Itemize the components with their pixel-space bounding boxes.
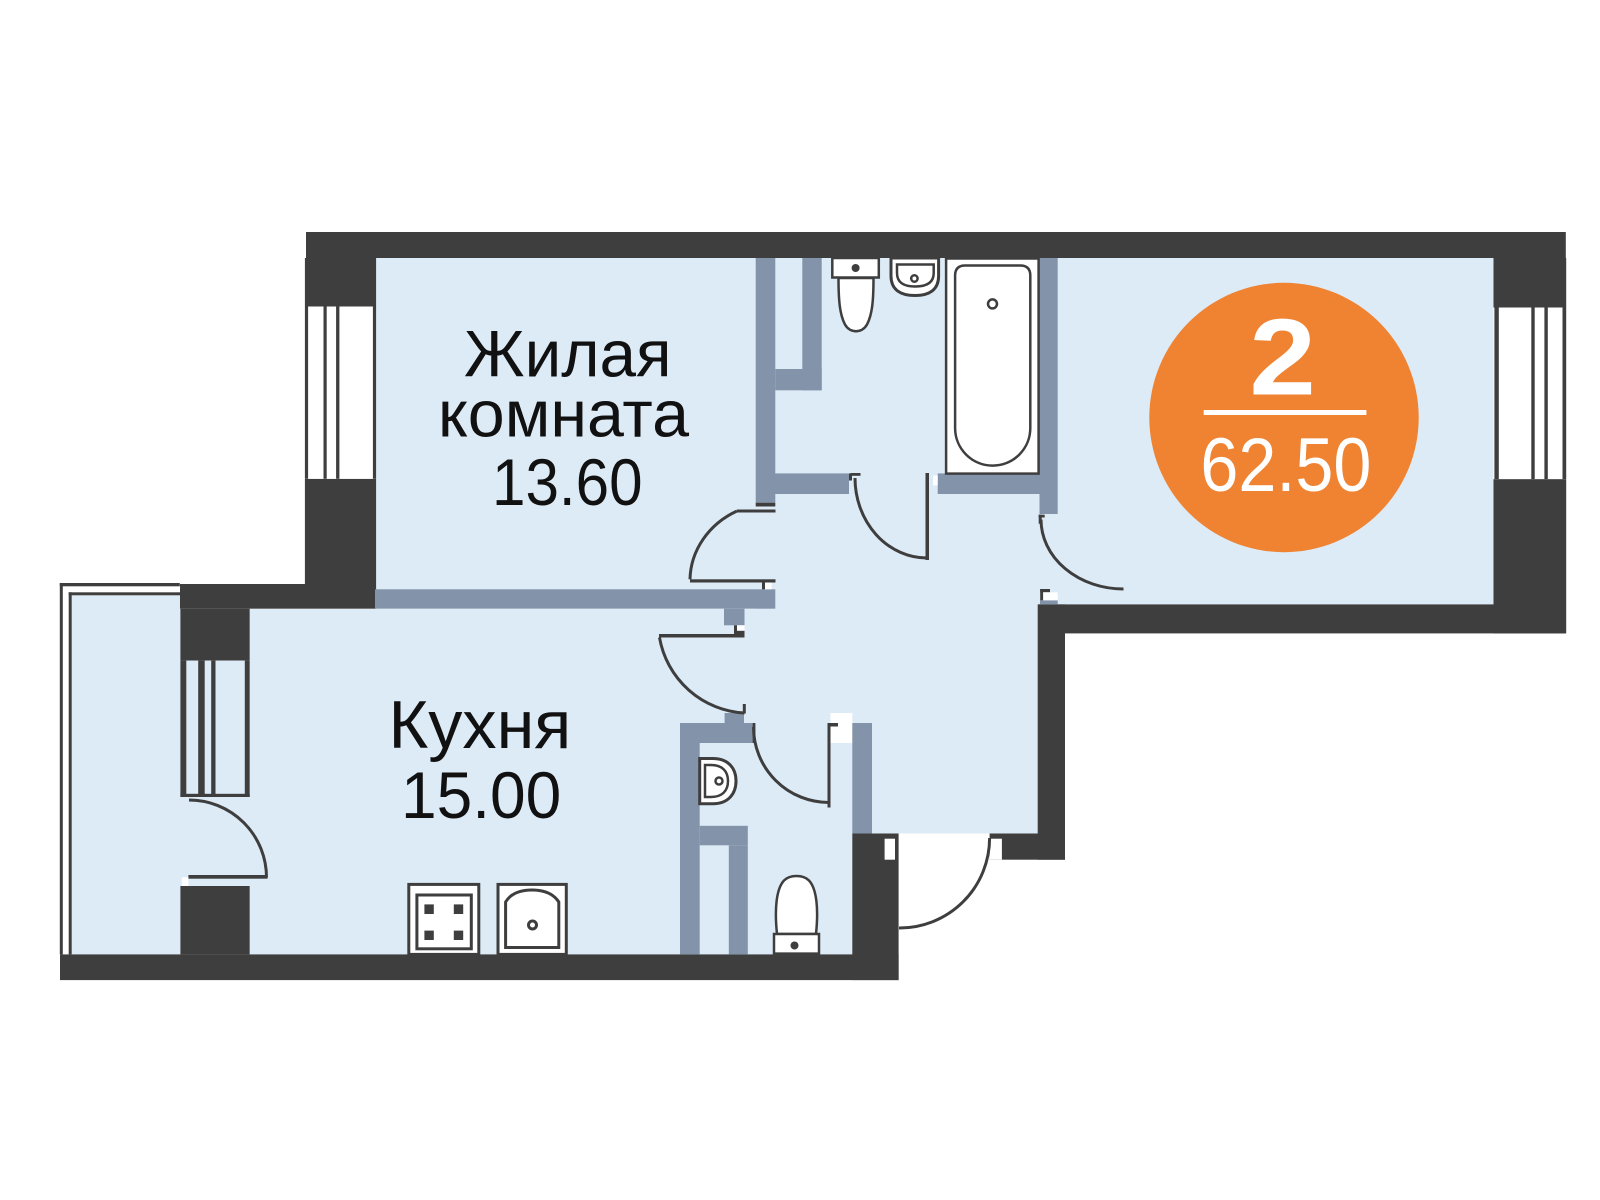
svg-text:15.00: 15.00 xyxy=(401,758,561,832)
svg-text:62.50: 62.50 xyxy=(1200,423,1371,508)
svg-text:13.60: 13.60 xyxy=(492,445,643,519)
svg-text:комната: комната xyxy=(438,376,689,450)
svg-text:Кухня: Кухня xyxy=(389,687,572,763)
svg-text:2: 2 xyxy=(1249,297,1316,419)
